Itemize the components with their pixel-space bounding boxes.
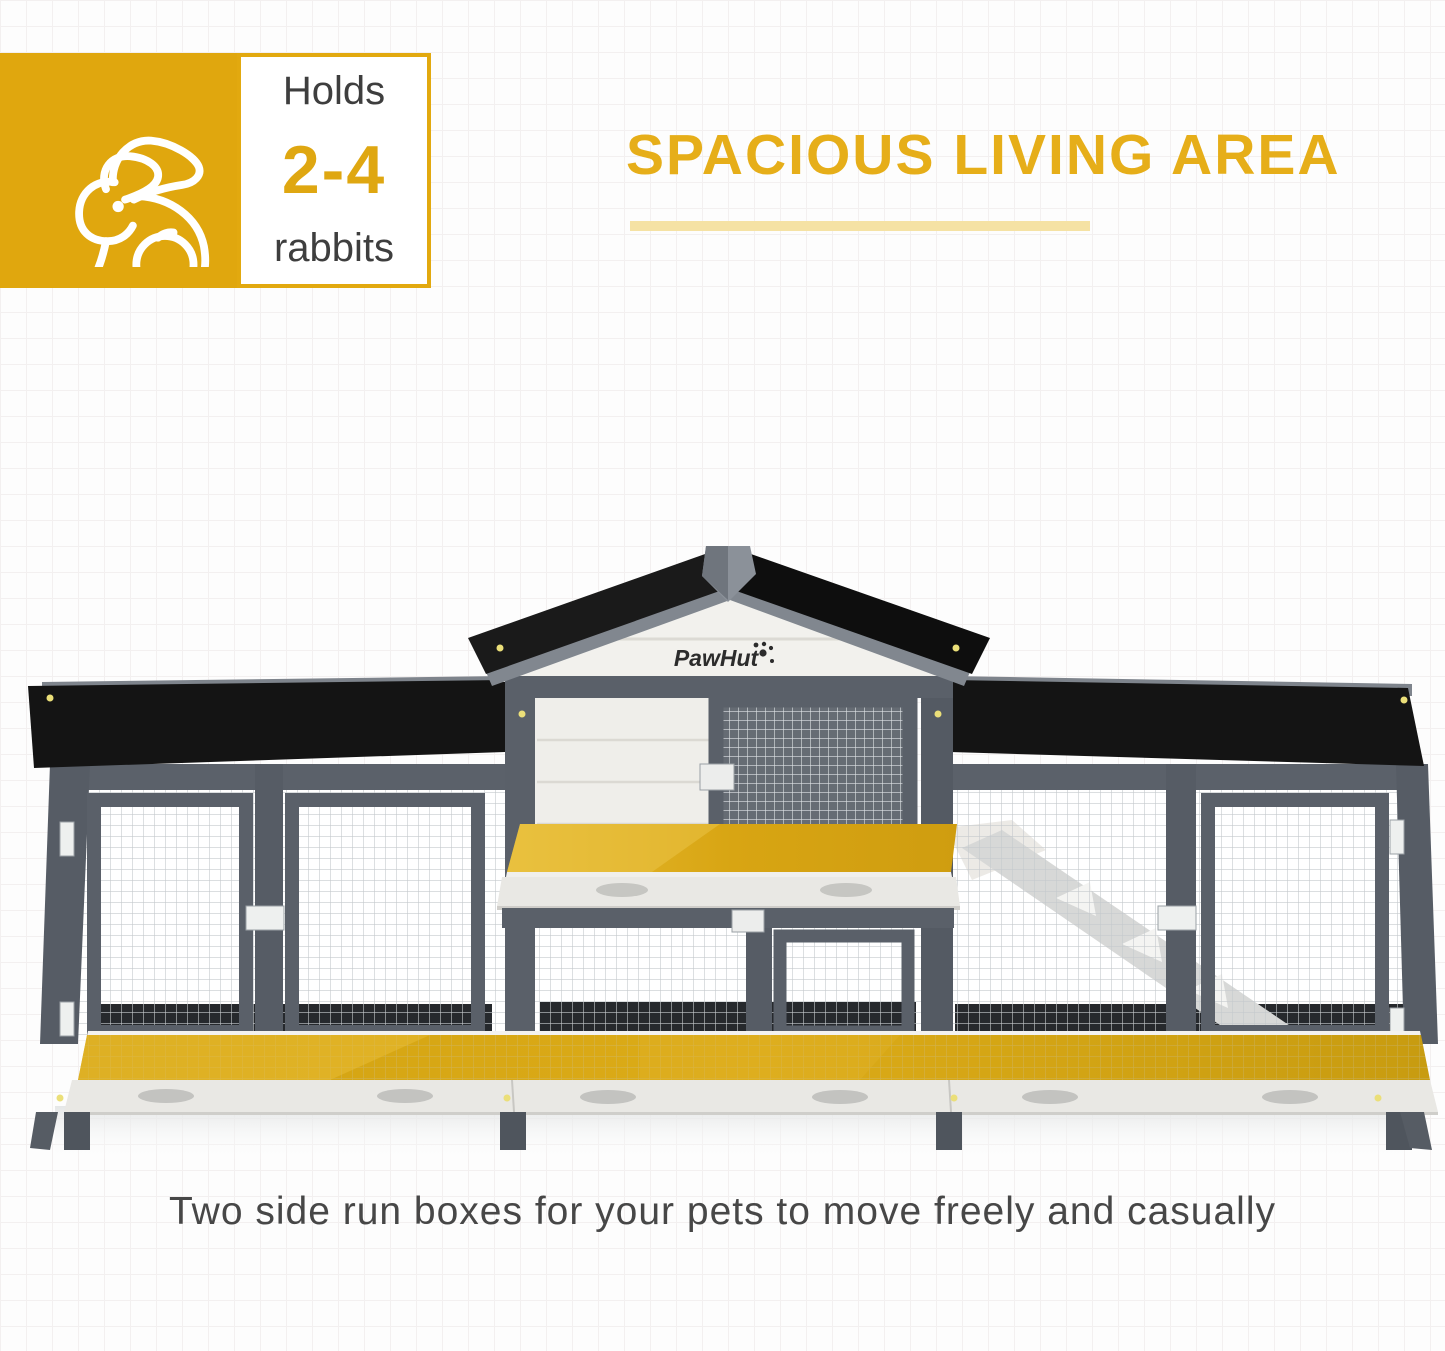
brand-logo: PawHut	[674, 645, 760, 671]
product-photo: PawHut	[0, 530, 1445, 1170]
title-underline	[630, 221, 1090, 231]
rabbit-badge	[0, 53, 237, 288]
product-feature-image: Holds 2-4 rabbits SPACIOUS LIVING AREA	[0, 0, 1445, 1351]
hinge	[1390, 820, 1404, 854]
capacity-badge: Holds 2-4 rabbits	[237, 53, 431, 288]
right-run-box	[944, 676, 1438, 1078]
hinge	[60, 1002, 74, 1036]
tray-handle	[596, 883, 648, 897]
rabbit-icon	[28, 75, 210, 267]
holds-label: Holds	[283, 71, 385, 111]
base-handle	[580, 1090, 636, 1104]
animal-label: rabbits	[274, 228, 394, 268]
door-latch	[246, 906, 284, 930]
door-latch	[732, 910, 764, 932]
base-handle	[812, 1090, 868, 1104]
base-handle	[1022, 1090, 1078, 1104]
feature-caption: Two side run boxes for your pets to move…	[0, 1190, 1445, 1234]
page-title: SPACIOUS LIVING AREA	[626, 122, 1341, 188]
pull-out-tray	[497, 877, 960, 906]
hinge	[60, 822, 74, 856]
capacity-count: 2-4	[282, 136, 386, 204]
base-handle	[377, 1089, 433, 1103]
center-hutch: PawHut	[468, 546, 990, 1042]
highlighted-run-floor	[78, 1031, 1430, 1080]
tray-handle	[820, 883, 872, 897]
left-roof	[28, 680, 505, 768]
base-handle	[138, 1089, 194, 1103]
hinge	[700, 764, 734, 790]
base-handle	[1262, 1090, 1318, 1104]
left-run-box	[28, 676, 505, 1044]
right-roof	[950, 680, 1424, 766]
base-frame	[64, 1080, 1438, 1115]
door-latch	[1158, 906, 1196, 930]
